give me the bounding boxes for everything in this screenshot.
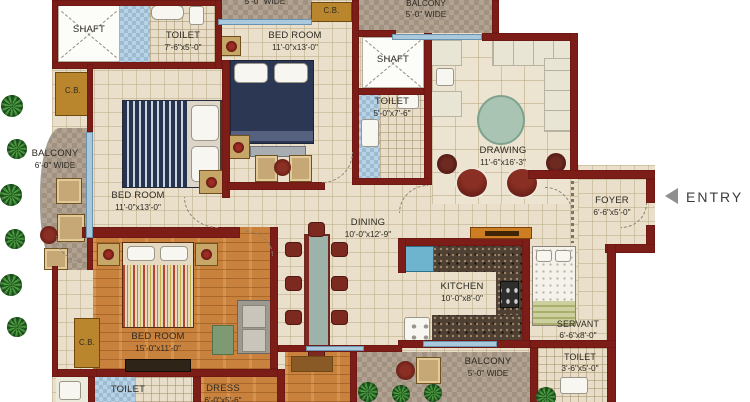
shaft-top-side-tiles [120,5,150,62]
room-label-shaft-top: SHAFT [60,24,118,36]
wall [52,266,58,377]
sofa-l-side [544,58,572,132]
plant-icon [536,387,556,402]
entry-arrow-icon [665,188,678,204]
window [423,341,497,347]
bedside-table-left [97,243,120,266]
wall [424,33,432,185]
balcony-chair-1 [56,178,82,204]
wall [522,238,530,348]
room-label-dining: DINING 10'-0"x12'-9" [325,217,411,240]
room-label-drawing: DRAWING 11'-6"x16'-3" [455,145,551,168]
label-cb-left-bottom: C.B. [70,338,104,348]
wall [277,369,285,402]
window [392,34,482,40]
center-table-oval [477,95,525,145]
tv-console [125,359,191,372]
round-table-1 [437,154,457,174]
label-cb-left-top: C.B. [56,86,90,96]
kitchen-appliance [404,317,430,341]
wall [88,377,95,402]
label-balcony-top: 5'-0" WIDE [218,0,312,7]
wall [52,369,97,377]
room-label-toilet-master: TOILET [98,384,158,396]
wall [528,170,655,179]
wall [52,0,58,68]
crockery-unit [470,227,532,239]
wall [482,33,578,41]
plant-icon [0,274,22,296]
balcony-bottom-table [396,361,415,380]
label-balcony-top-right: BALCONY 5'-0" WIDE [372,0,480,20]
wall [398,238,530,246]
wall [215,0,222,69]
outside-top-right [498,0,578,33]
room-label-toilet-servant: TOILET 3'-6"x5'-0" [542,352,618,374]
floor-plan: SHAFT TOILET 7'-6"x5'-0" C.B. 5'-0" WIDE… [0,0,750,402]
armchair-1 [431,40,462,66]
plant-icon [5,229,25,249]
dress-cabinet [291,356,333,372]
room-label-bedroom-left: BED ROOM 11'-0"x13'-0" [92,190,184,213]
label-balcony-bottom: BALCONY 5'-0" WIDE [445,356,531,379]
balcony-bottom-chair [416,357,441,384]
wall [570,33,578,173]
plant-icon [392,385,410,402]
bed-master [122,242,194,328]
wc-corner [59,381,81,400]
plant-icon [0,184,22,206]
wc-top [189,6,204,25]
room-label-toilet-mid: TOILET 5'-0"x7'-6" [362,96,422,119]
wall [87,64,93,132]
plant-icon [358,382,378,402]
wall [52,0,222,6]
window [218,19,312,25]
wall [398,238,406,273]
entry-label: ENTRY [686,189,743,205]
wall [492,0,499,33]
label-balcony-left: BALCONY 6'-0" WIDE [16,148,94,171]
wall [358,88,424,95]
side-table-green [212,325,234,355]
label-cb-top: C.B. [311,6,352,16]
room-label-toilet-top: TOILET 7'-6"x5'-0" [152,30,214,53]
plant-icon [1,95,23,117]
wall [82,227,240,238]
balcony-round-table [40,226,58,244]
room-label-bedroom-master: BED ROOM 15'-0"x11'-0" [112,331,204,354]
room-label-bedroom-top: BED ROOM 11'-0"x13'-0" [252,30,338,53]
bed-servant [532,246,576,326]
wc-servant [560,377,588,394]
kitchen-counter-bottom [432,315,524,342]
flower-table-3 [221,36,241,56]
wc-mid [361,119,379,147]
sofa-master [237,300,271,354]
wall [358,30,396,37]
nook-table [274,159,291,176]
wall [87,238,93,270]
room-label-shaft-mid: SHAFT [364,54,422,66]
armchair-2 [431,91,462,117]
kitchen-sink [404,246,434,272]
flower-table-2 [199,170,223,194]
room-label-foyer: FOYER 6'-6"x5'-0" [572,195,652,218]
window [306,346,364,351]
plant-icon [424,384,442,402]
room-label-kitchen: KITCHEN 10'-0"x8'-0" [418,281,506,304]
wall [222,60,230,198]
wall [352,178,432,185]
room-label-dress: DRESS 6'-0"x5'-6" [198,383,248,402]
bed-top [230,60,314,144]
wall [52,62,224,69]
outside-bottom-right [616,253,661,402]
wall [350,352,357,402]
bedside-table-right [195,243,218,266]
fan-chair-1 [455,167,489,199]
drawing-side-table [436,68,454,86]
plant-icon [7,317,27,337]
room-label-servant: SERVANT 6'-6"x8'-0" [536,319,620,341]
nook-chair-2 [289,155,312,182]
wall [227,182,325,190]
dining-set [285,224,347,360]
bathtub [151,5,184,20]
